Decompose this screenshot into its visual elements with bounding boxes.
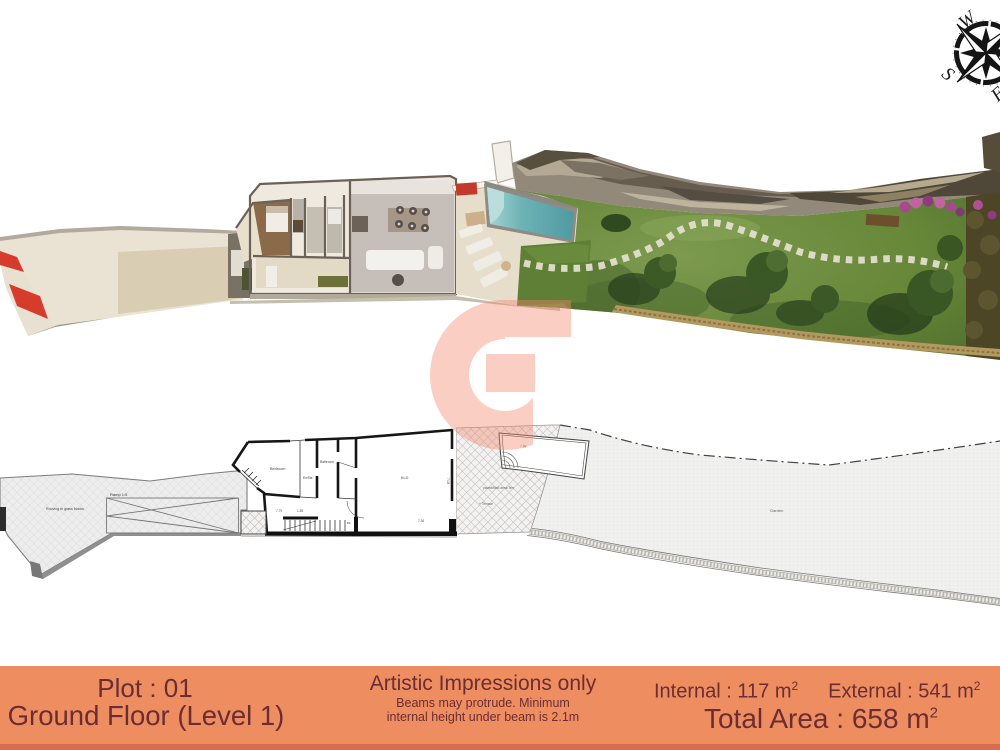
svg-text:Ramp 1:5: Ramp 1:5 xyxy=(110,492,128,497)
svg-text:7.36: 7.36 xyxy=(418,519,424,523)
svg-text:S: S xyxy=(937,63,958,86)
svg-text:Rooving in grass blocks: Rooving in grass blocks xyxy=(46,507,84,511)
svg-text:+ Terrace: + Terrace xyxy=(479,502,493,506)
svg-text:En/Ste: En/Ste xyxy=(303,476,313,480)
svg-text:W: W xyxy=(955,6,982,34)
svg-text:Bedroom: Bedroom xyxy=(270,467,285,471)
svg-text:Garden: Garden xyxy=(770,508,783,513)
svg-text:Bin: Bin xyxy=(347,521,351,525)
svg-text:E: E xyxy=(986,82,1000,106)
svg-text:Bathroom: Bathroom xyxy=(320,460,334,464)
svg-text:7.79: 7.79 xyxy=(276,509,282,513)
svg-text:1.85: 1.85 xyxy=(297,509,303,513)
